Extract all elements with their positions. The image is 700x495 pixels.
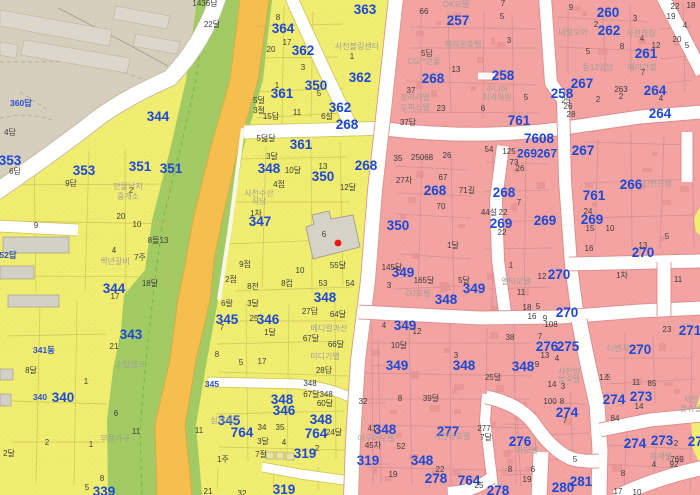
svg-text:52: 52 bbox=[397, 442, 406, 451]
svg-text:1: 1 bbox=[89, 440, 94, 449]
svg-text:348: 348 bbox=[258, 161, 281, 176]
svg-text:25: 25 bbox=[250, 314, 259, 323]
svg-text:344: 344 bbox=[147, 109, 170, 124]
svg-text:사천상호텔: 사천상호텔 bbox=[434, 431, 471, 441]
svg-text:아쿠아모텔: 아쿠아모텔 bbox=[358, 433, 395, 443]
svg-text:8: 8 bbox=[276, 13, 281, 22]
svg-text:71길: 71길 bbox=[459, 186, 475, 195]
svg-text:7: 7 bbox=[501, 0, 506, 8]
svg-text:10: 10 bbox=[296, 266, 305, 275]
svg-text:21: 21 bbox=[204, 487, 213, 495]
svg-text:12: 12 bbox=[538, 272, 547, 281]
svg-text:54: 54 bbox=[346, 279, 355, 288]
svg-text:4접: 4접 bbox=[273, 179, 285, 189]
svg-text:13: 13 bbox=[639, 241, 648, 250]
svg-text:27차: 27차 bbox=[396, 176, 413, 185]
svg-text:264: 264 bbox=[649, 106, 672, 121]
svg-text:270: 270 bbox=[556, 305, 579, 320]
svg-text:769: 769 bbox=[670, 455, 684, 464]
svg-text:18: 18 bbox=[687, 1, 696, 10]
svg-text:1차: 1차 bbox=[616, 271, 628, 280]
svg-text:7절: 7절 bbox=[255, 450, 267, 459]
svg-text:70: 70 bbox=[437, 202, 446, 211]
svg-text:11: 11 bbox=[195, 426, 204, 435]
svg-text:9: 9 bbox=[569, 3, 574, 12]
svg-text:273: 273 bbox=[651, 433, 674, 448]
svg-text:8컵: 8컵 bbox=[281, 279, 293, 288]
svg-text:1달: 1달 bbox=[264, 328, 276, 337]
svg-text:64달: 64달 bbox=[330, 310, 347, 319]
svg-text:145달: 145달 bbox=[382, 263, 403, 272]
svg-text:엘타모텔: 엘타모텔 bbox=[501, 276, 530, 286]
svg-text:268: 268 bbox=[422, 71, 445, 86]
svg-text:761: 761 bbox=[508, 113, 531, 128]
svg-text:12달: 12달 bbox=[340, 183, 357, 192]
svg-text:12: 12 bbox=[413, 327, 422, 336]
svg-text:1436답: 1436답 bbox=[192, 0, 218, 8]
svg-text:350: 350 bbox=[387, 218, 410, 233]
svg-text:4: 4 bbox=[282, 438, 287, 447]
svg-text:268: 268 bbox=[493, 185, 516, 200]
svg-text:11: 11 bbox=[674, 275, 683, 284]
svg-text:14: 14 bbox=[635, 402, 644, 411]
svg-text:5덟달: 5덟달 bbox=[256, 133, 276, 143]
svg-text:19: 19 bbox=[389, 470, 398, 479]
svg-text:35: 35 bbox=[276, 423, 285, 432]
svg-text:38: 38 bbox=[506, 333, 515, 342]
svg-text:사천염집: 사천염집 bbox=[626, 28, 655, 38]
svg-text:2: 2 bbox=[315, 444, 320, 453]
svg-text:3달: 3달 bbox=[266, 152, 278, 161]
svg-text:10: 10 bbox=[133, 220, 142, 229]
svg-text:364: 364 bbox=[272, 21, 295, 36]
svg-text:268: 268 bbox=[355, 158, 378, 173]
svg-text:340: 340 bbox=[33, 392, 47, 402]
svg-text:278: 278 bbox=[487, 483, 510, 495]
svg-text:19: 19 bbox=[667, 12, 676, 21]
svg-text:349: 349 bbox=[386, 358, 409, 373]
svg-text:8: 8 bbox=[560, 397, 565, 406]
svg-text:44설: 44설 bbox=[481, 207, 497, 217]
svg-text:274: 274 bbox=[556, 405, 579, 420]
svg-text:OK모텔: OK모텔 bbox=[443, 0, 469, 9]
svg-text:3달: 3달 bbox=[247, 299, 259, 308]
svg-text:26: 26 bbox=[516, 164, 525, 173]
svg-text:5덜: 5덜 bbox=[253, 95, 265, 105]
svg-text:22달: 22달 bbox=[204, 20, 221, 29]
svg-text:6설: 6설 bbox=[321, 111, 333, 121]
svg-text:20: 20 bbox=[117, 212, 126, 221]
svg-text:7: 7 bbox=[563, 416, 568, 425]
svg-text:67달348: 67달348 bbox=[303, 390, 333, 399]
svg-text:5: 5 bbox=[573, 455, 578, 464]
svg-text:28답: 28답 bbox=[316, 365, 333, 375]
svg-text:274: 274 bbox=[603, 392, 626, 407]
svg-text:363: 363 bbox=[354, 2, 377, 17]
svg-text:20: 20 bbox=[267, 45, 276, 54]
svg-text:OJ모텔: OJ모텔 bbox=[406, 289, 431, 298]
svg-text:341동: 341동 bbox=[33, 345, 55, 355]
svg-text:351: 351 bbox=[160, 161, 183, 176]
svg-text:25: 25 bbox=[475, 481, 484, 490]
svg-text:8: 8 bbox=[620, 42, 625, 51]
svg-text:764: 764 bbox=[231, 425, 254, 440]
svg-text:258: 258 bbox=[492, 68, 515, 83]
svg-text:중개소: 중개소 bbox=[117, 191, 139, 201]
svg-text:270: 270 bbox=[629, 342, 652, 357]
svg-text:동12임당: 동12임당 bbox=[583, 62, 615, 72]
svg-text:66달: 66달 bbox=[328, 340, 345, 349]
svg-text:7: 7 bbox=[517, 198, 522, 207]
svg-text:3: 3 bbox=[387, 281, 392, 290]
svg-text:268: 268 bbox=[336, 117, 359, 132]
svg-text:270: 270 bbox=[548, 267, 571, 282]
svg-text:319: 319 bbox=[294, 446, 317, 461]
svg-text:6: 6 bbox=[322, 230, 327, 239]
svg-text:362: 362 bbox=[292, 43, 315, 58]
svg-text:미디기별: 미디기별 bbox=[310, 351, 339, 361]
svg-text:메리야힐: 메리야힐 bbox=[627, 62, 656, 72]
svg-text:4답: 4답 bbox=[4, 127, 16, 137]
svg-text:339: 339 bbox=[93, 484, 116, 495]
svg-text:6랄: 6랄 bbox=[221, 299, 233, 308]
svg-text:348: 348 bbox=[435, 292, 458, 307]
svg-text:353: 353 bbox=[0, 153, 22, 168]
svg-text:271: 271 bbox=[679, 323, 700, 338]
svg-text:11: 11 bbox=[632, 378, 641, 387]
svg-text:27답: 27답 bbox=[302, 306, 319, 316]
svg-text:16: 16 bbox=[585, 244, 594, 253]
svg-text:5: 5 bbox=[524, 93, 529, 102]
svg-text:346: 346 bbox=[273, 403, 296, 418]
svg-text:8: 8 bbox=[215, 350, 220, 359]
svg-text:260: 260 bbox=[597, 5, 620, 20]
svg-text:5: 5 bbox=[239, 358, 244, 367]
svg-text:더벤치: 더벤치 bbox=[607, 343, 629, 353]
svg-text:올슈텔: 올슈텔 bbox=[680, 404, 700, 413]
svg-text:소일샘크: 소일샘크 bbox=[115, 360, 144, 369]
svg-text:351: 351 bbox=[129, 159, 152, 174]
svg-text:17: 17 bbox=[614, 487, 623, 495]
svg-text:13: 13 bbox=[452, 65, 461, 74]
svg-text:269267: 269267 bbox=[517, 146, 557, 160]
svg-text:CG**건물: CG**건물 bbox=[408, 56, 441, 66]
svg-text:8: 8 bbox=[508, 465, 513, 474]
svg-text:35: 35 bbox=[394, 154, 403, 163]
svg-text:13: 13 bbox=[541, 351, 550, 360]
svg-text:53: 53 bbox=[319, 279, 328, 288]
svg-text:4: 4 bbox=[683, 21, 688, 30]
svg-text:37답: 37답 bbox=[400, 117, 417, 127]
svg-text:348: 348 bbox=[453, 358, 476, 373]
svg-text:348: 348 bbox=[512, 359, 535, 374]
svg-text:264: 264 bbox=[644, 83, 667, 98]
svg-text:343: 343 bbox=[120, 327, 143, 342]
svg-text:2: 2 bbox=[594, 20, 599, 29]
svg-text:16: 16 bbox=[528, 312, 537, 321]
svg-text:3절: 3절 bbox=[253, 106, 265, 115]
svg-text:108: 108 bbox=[544, 320, 558, 329]
svg-text:266: 266 bbox=[620, 177, 643, 192]
svg-text:10: 10 bbox=[633, 488, 642, 495]
svg-text:20: 20 bbox=[673, 35, 682, 44]
svg-text:274: 274 bbox=[624, 436, 647, 451]
svg-text:281: 281 bbox=[570, 474, 593, 489]
svg-text:761: 761 bbox=[583, 188, 606, 203]
svg-text:25068: 25068 bbox=[411, 153, 434, 162]
svg-text:267: 267 bbox=[571, 76, 594, 91]
svg-text:60달: 60달 bbox=[317, 399, 334, 408]
svg-text:8달: 8달 bbox=[25, 366, 37, 375]
svg-text:안물낙지: 안물낙지 bbox=[113, 181, 142, 191]
svg-text:1: 1 bbox=[350, 52, 355, 61]
svg-text:5: 5 bbox=[586, 47, 591, 56]
svg-text:도피스텔: 도피스텔 bbox=[400, 103, 429, 112]
svg-text:8: 8 bbox=[100, 474, 105, 483]
svg-text:360답: 360답 bbox=[10, 98, 32, 108]
svg-text:5: 5 bbox=[317, 89, 322, 98]
svg-text:식당: 식당 bbox=[252, 196, 267, 206]
svg-text:32: 32 bbox=[359, 397, 368, 406]
svg-text:100: 100 bbox=[543, 397, 557, 406]
svg-text:275: 275 bbox=[557, 339, 580, 354]
svg-text:350: 350 bbox=[312, 169, 335, 184]
svg-text:1: 1 bbox=[275, 81, 280, 90]
svg-text:10달: 10달 bbox=[391, 341, 408, 350]
svg-text:125: 125 bbox=[502, 147, 516, 156]
svg-text:19: 19 bbox=[523, 475, 532, 484]
svg-text:7달: 7달 bbox=[480, 433, 492, 442]
svg-text:17: 17 bbox=[258, 357, 267, 366]
svg-text:21: 21 bbox=[110, 342, 119, 351]
svg-text:2: 2 bbox=[45, 438, 50, 447]
svg-text:사천: 사천 bbox=[684, 394, 699, 404]
svg-text:165달: 165달 bbox=[414, 276, 435, 285]
svg-text:348: 348 bbox=[411, 453, 434, 468]
svg-text:319: 319 bbox=[357, 453, 380, 468]
svg-text:348: 348 bbox=[310, 412, 333, 427]
svg-text:273: 273 bbox=[688, 434, 700, 449]
svg-text:277: 277 bbox=[477, 424, 491, 433]
svg-text:39덜: 39덜 bbox=[423, 393, 439, 403]
svg-text:치과의원: 치과의원 bbox=[482, 92, 511, 102]
svg-text:22: 22 bbox=[498, 228, 507, 237]
svg-text:9접: 9접 bbox=[239, 259, 251, 269]
svg-text:1: 1 bbox=[509, 261, 514, 270]
svg-text:5달: 5달 bbox=[458, 276, 470, 285]
svg-text:9: 9 bbox=[34, 221, 39, 230]
svg-text:2접: 2접 bbox=[225, 274, 237, 284]
svg-text:1차: 1차 bbox=[250, 209, 262, 218]
svg-text:희재텔: 희재텔 bbox=[650, 451, 672, 461]
svg-text:85: 85 bbox=[648, 379, 657, 388]
svg-text:66: 66 bbox=[420, 7, 429, 16]
svg-text:메디컬과선: 메디컬과선 bbox=[311, 324, 348, 333]
svg-text:84: 84 bbox=[611, 414, 620, 423]
svg-text:17: 17 bbox=[111, 292, 120, 301]
svg-text:41: 41 bbox=[368, 424, 377, 433]
svg-text:10: 10 bbox=[606, 224, 615, 233]
svg-text:헤리온호텔: 헤리온호텔 bbox=[445, 40, 482, 49]
svg-text:사천볼링센터: 사천볼링센터 bbox=[335, 41, 379, 51]
svg-text:346: 346 bbox=[257, 312, 280, 327]
svg-text:23: 23 bbox=[663, 325, 672, 334]
svg-text:정리라벨: 정리라벨 bbox=[400, 92, 429, 102]
svg-text:3: 3 bbox=[507, 36, 512, 45]
svg-text:신한은행: 신한은행 bbox=[642, 178, 671, 188]
svg-text:14: 14 bbox=[548, 380, 557, 389]
svg-text:15: 15 bbox=[586, 224, 595, 233]
svg-text:6: 6 bbox=[481, 104, 486, 113]
svg-text:1주: 1주 bbox=[217, 455, 229, 464]
svg-text:8돌13: 8돌13 bbox=[148, 236, 169, 245]
svg-text:3달: 3달 bbox=[257, 437, 269, 446]
svg-text:28: 28 bbox=[567, 110, 576, 119]
svg-text:4: 4 bbox=[382, 321, 387, 330]
svg-text:268: 268 bbox=[424, 183, 447, 198]
svg-text:267: 267 bbox=[572, 143, 595, 158]
svg-text:3: 3 bbox=[454, 351, 459, 360]
svg-text:9답: 9답 bbox=[65, 178, 77, 188]
svg-text:319: 319 bbox=[273, 482, 296, 495]
svg-text:3: 3 bbox=[633, 14, 638, 23]
svg-text:8: 8 bbox=[398, 394, 403, 403]
svg-text:54: 54 bbox=[485, 145, 494, 154]
svg-text:2달: 2달 bbox=[3, 449, 15, 458]
svg-text:10달: 10달 bbox=[285, 166, 302, 175]
svg-text:269: 269 bbox=[534, 213, 557, 228]
svg-text:34: 34 bbox=[258, 423, 267, 432]
svg-text:345: 345 bbox=[205, 379, 219, 389]
svg-text:5: 5 bbox=[500, 12, 505, 21]
svg-text:4: 4 bbox=[112, 246, 117, 255]
svg-text:362: 362 bbox=[349, 70, 372, 85]
svg-text:55달: 55달 bbox=[330, 261, 347, 270]
svg-text:1: 1 bbox=[84, 377, 89, 386]
svg-text:12: 12 bbox=[652, 41, 661, 50]
svg-text:7주: 7주 bbox=[134, 253, 146, 262]
svg-text:11: 11 bbox=[517, 288, 526, 297]
svg-text:22: 22 bbox=[499, 208, 508, 217]
svg-text:262: 262 bbox=[598, 23, 621, 38]
svg-text:25덜: 25덜 bbox=[485, 372, 501, 382]
svg-text:11: 11 bbox=[293, 108, 302, 117]
svg-text:32: 32 bbox=[238, 489, 247, 495]
svg-text:257: 257 bbox=[447, 13, 470, 28]
svg-text:353: 353 bbox=[73, 163, 96, 178]
svg-text:8전: 8전 bbox=[247, 281, 259, 291]
svg-text:심천가구: 심천가구 bbox=[210, 415, 239, 425]
svg-text:2: 2 bbox=[596, 95, 601, 104]
svg-text:348: 348 bbox=[314, 290, 337, 305]
svg-text:24달: 24달 bbox=[326, 428, 343, 437]
svg-text:4: 4 bbox=[652, 460, 657, 469]
svg-text:13: 13 bbox=[319, 162, 328, 171]
svg-text:5: 5 bbox=[85, 483, 90, 492]
svg-text:24: 24 bbox=[584, 207, 593, 216]
svg-text:52답: 52답 bbox=[0, 250, 17, 260]
svg-text:올숙텔: 올숙텔 bbox=[558, 375, 580, 384]
svg-text:11: 11 bbox=[132, 427, 141, 436]
svg-text:백년갈비: 백년갈비 bbox=[100, 256, 129, 266]
svg-text:67: 67 bbox=[439, 173, 448, 182]
svg-text:1조: 1조 bbox=[599, 373, 611, 382]
svg-text:5: 5 bbox=[536, 302, 541, 311]
svg-text:6: 6 bbox=[531, 465, 536, 474]
svg-text:2: 2 bbox=[674, 439, 679, 448]
svg-text:22: 22 bbox=[671, 2, 680, 11]
svg-text:5: 5 bbox=[685, 41, 690, 50]
svg-text:348: 348 bbox=[303, 379, 317, 388]
svg-text:764: 764 bbox=[305, 426, 328, 441]
svg-text:카모텔: 카모텔 bbox=[516, 446, 538, 455]
svg-text:15답: 15답 bbox=[263, 111, 280, 121]
svg-text:7: 7 bbox=[538, 332, 543, 341]
svg-text:340: 340 bbox=[52, 390, 75, 405]
svg-text:26: 26 bbox=[443, 151, 452, 160]
svg-text:361: 361 bbox=[290, 137, 313, 152]
svg-text:4: 4 bbox=[555, 354, 560, 363]
svg-text:2: 2 bbox=[619, 92, 624, 101]
svg-text:7: 7 bbox=[220, 323, 225, 332]
svg-text:3: 3 bbox=[301, 63, 306, 72]
svg-text:6답: 6답 bbox=[9, 166, 21, 176]
svg-text:5: 5 bbox=[665, 232, 670, 241]
svg-text:67달: 67달 bbox=[303, 334, 320, 343]
svg-text:8: 8 bbox=[621, 469, 626, 478]
svg-text:22: 22 bbox=[436, 465, 445, 474]
svg-text:7608: 7608 bbox=[524, 131, 555, 146]
svg-text:17: 17 bbox=[283, 38, 292, 47]
svg-text:23: 23 bbox=[437, 104, 446, 113]
svg-text:6: 6 bbox=[114, 409, 119, 418]
svg-text:내일모아: 내일모아 bbox=[558, 27, 588, 37]
svg-text:18: 18 bbox=[523, 303, 532, 312]
svg-text:9: 9 bbox=[535, 360, 540, 369]
svg-text:18달: 18달 bbox=[142, 279, 159, 288]
svg-text:1달: 1달 bbox=[447, 241, 459, 250]
svg-text:부용가구: 부용가구 bbox=[100, 434, 129, 443]
svg-text:4: 4 bbox=[659, 94, 664, 103]
